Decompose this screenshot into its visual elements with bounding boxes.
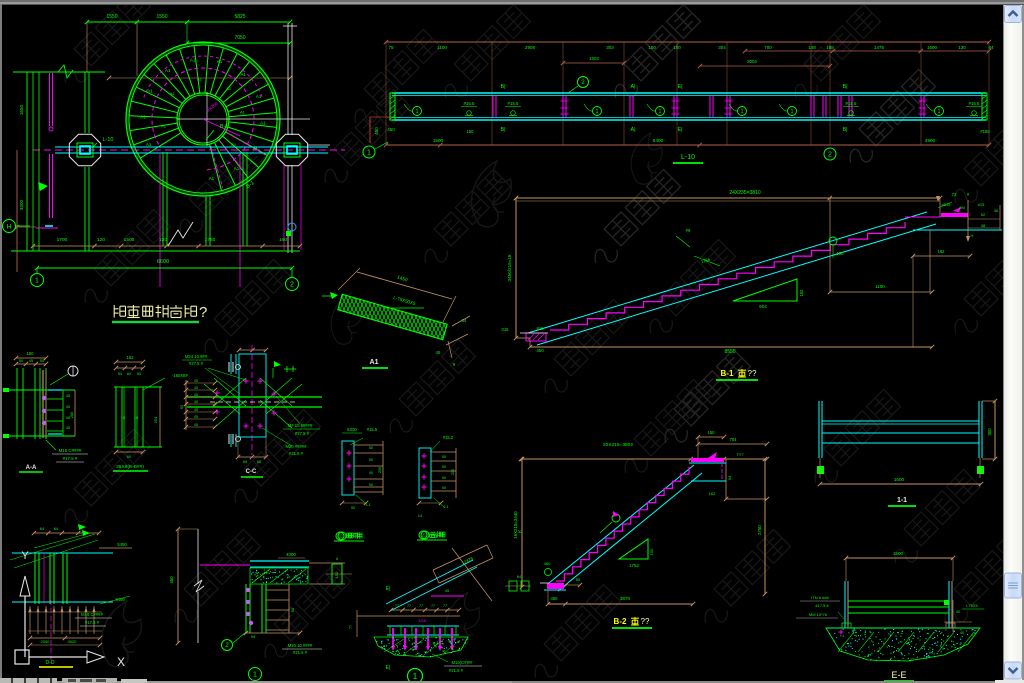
svg-text:1550: 1550 — [156, 14, 167, 20]
svg-text:1700: 1700 — [57, 237, 68, 243]
svg-text:2750: 2750 — [757, 525, 762, 535]
svg-text:A|: A| — [630, 127, 635, 133]
svg-text:250: 250 — [70, 412, 74, 418]
svg-text:162: 162 — [709, 491, 716, 496]
svg-text:45: 45 — [194, 379, 198, 383]
svg-text:1500: 1500 — [124, 237, 135, 243]
svg-text:65: 65 — [243, 460, 247, 464]
svg-text:1600: 1600 — [894, 477, 905, 482]
svg-text:L75X5: L75X5 — [966, 603, 978, 608]
svg-text:A-A: A-A — [26, 465, 37, 471]
svg-text:45: 45 — [436, 350, 441, 355]
svg-text:50: 50 — [40, 359, 44, 363]
svg-text:3300: 3300 — [19, 199, 24, 210]
svg-text:E|: E| — [386, 586, 391, 592]
svg-text:900: 900 — [987, 428, 992, 436]
svg-text:450: 450 — [551, 596, 559, 601]
svg-text:M20 #####: M20 ##### — [286, 444, 308, 449]
svg-text:15: 15 — [134, 416, 138, 420]
svg-text:450: 450 — [387, 127, 395, 132]
svg-text:??: ?? — [748, 369, 757, 378]
svg-text:304: 304 — [718, 45, 726, 50]
svg-text:#15: #15 — [537, 326, 545, 331]
svg-text:2: 2 — [828, 152, 832, 159]
svg-text:150: 150 — [334, 571, 339, 578]
svg-text:45: 45 — [194, 408, 198, 412]
svg-text:A1: A1 — [370, 359, 379, 366]
svg-text:6600: 6600 — [157, 259, 169, 265]
svg-text:50: 50 — [369, 446, 373, 450]
svg-text:150: 150 — [467, 129, 475, 134]
svg-text:Y: Y — [21, 550, 29, 562]
svg-text:150: 150 — [649, 548, 654, 555]
svg-text:55: 55 — [576, 577, 581, 582]
svg-text:16X215=3440: 16X215=3440 — [513, 511, 518, 539]
svg-text:77: 77 — [395, 604, 399, 608]
svg-text:77: 77 — [349, 625, 353, 629]
svg-text:1500: 1500 — [893, 551, 904, 556]
svg-text:E-E: E-E — [891, 670, 906, 680]
svg-text:#21.5 #: #21.5 # — [449, 668, 464, 673]
svg-text:A1: A1 — [240, 72, 246, 77]
svg-text:150: 150 — [799, 289, 804, 297]
svg-text:52: 52 — [981, 212, 986, 217]
svg-text:120: 120 — [159, 237, 167, 243]
svg-text:700: 700 — [764, 45, 772, 50]
svg-text:450: 450 — [169, 576, 174, 584]
svg-text:#21.5 #: #21.5 # — [289, 451, 304, 456]
svg-text:92: 92 — [179, 404, 184, 409]
svg-text:3450/215=16: 3450/215=16 — [507, 254, 512, 281]
svg-text:#17.5 #: #17.5 # — [85, 620, 100, 625]
svg-text:A|: A| — [630, 84, 635, 90]
svg-text:A1: A1 — [217, 59, 223, 64]
svg-text:#27.5 #: #27.5 # — [189, 361, 204, 366]
svg-text:E|: E| — [677, 84, 682, 90]
svg-text:5825: 5825 — [234, 14, 245, 20]
svg-text:460: 460 — [544, 561, 551, 566]
svg-text:A1: A1 — [209, 176, 215, 181]
svg-text:A1: A1 — [256, 94, 262, 99]
svg-text:3020: 3020 — [68, 639, 78, 644]
svg-text:#15.5: #15.5 — [367, 427, 378, 432]
svg-text:1780: 1780 — [205, 237, 216, 243]
svg-text:64: 64 — [462, 318, 467, 323]
svg-text:1-1: 1-1 — [897, 497, 907, 504]
svg-text:MM 10*7#: MM 10*7# — [809, 612, 828, 617]
svg-text:4900: 4900 — [925, 138, 936, 144]
svg-text:A1: A1 — [231, 142, 237, 147]
svg-text:C-C: C-C — [246, 469, 257, 475]
svg-text:1650: 1650 — [19, 104, 24, 115]
svg-text:50: 50 — [118, 372, 122, 376]
svg-text:108: 108 — [826, 45, 834, 50]
svg-text:150: 150 — [837, 251, 845, 256]
svg-text:#9: #9 — [686, 228, 691, 233]
svg-text:1: 1 — [596, 109, 599, 115]
svg-text:A1: A1 — [197, 77, 203, 82]
svg-text:38: 38 — [981, 223, 986, 228]
svg-text:#27.5 #: #27.5 # — [295, 431, 310, 436]
svg-text:1-1: 1-1 — [443, 505, 449, 509]
svg-text:L-10: L-10 — [681, 154, 695, 161]
svg-text:60: 60 — [127, 372, 131, 376]
svg-text:50: 50 — [442, 455, 446, 459]
svg-text:7050: 7050 — [234, 35, 245, 41]
svg-text:H: H — [7, 224, 12, 231]
svg-text:77: 77 — [443, 604, 447, 608]
svg-text:B|: B| — [842, 84, 847, 90]
svg-text:4000: 4000 — [286, 552, 296, 557]
svg-text:6400: 6400 — [653, 138, 664, 144]
svg-text:ITN 6.###: ITN 6.### — [811, 595, 829, 600]
svg-text:50: 50 — [19, 359, 23, 363]
svg-text:60: 60 — [127, 455, 131, 459]
svg-text:148: 148 — [808, 45, 816, 50]
svg-text:50: 50 — [369, 471, 373, 475]
svg-text:#15.5: #15.5 — [464, 101, 476, 106]
svg-text:E|: E| — [677, 127, 682, 133]
svg-text:64: 64 — [54, 526, 59, 531]
svg-text:50: 50 — [442, 476, 446, 480]
svg-text:45: 45 — [194, 393, 198, 397]
svg-text:E|: E| — [386, 665, 391, 671]
svg-text:45: 45 — [194, 400, 198, 404]
svg-text:1500: 1500 — [433, 138, 444, 143]
svg-text:1100: 1100 — [437, 45, 447, 50]
svg-text:#21.5 #: #21.5 # — [293, 650, 308, 655]
svg-text:3#: 3# — [994, 208, 999, 213]
svg-text:A1: A1 — [190, 57, 196, 62]
svg-text:D-D: D-D — [46, 660, 55, 666]
svg-text:45: 45 — [66, 394, 70, 398]
svg-text:50: 50 — [137, 372, 141, 376]
svg-text:65: 65 — [257, 460, 261, 464]
svg-text:50: 50 — [442, 465, 446, 469]
svg-text:162: 162 — [938, 249, 946, 254]
svg-text:#185: #185 — [980, 129, 990, 134]
svg-text:A1: A1 — [147, 88, 153, 93]
svg-text:35X8(B-B##): 35X8(B-B##) — [116, 464, 144, 470]
svg-text:50: 50 — [351, 506, 355, 510]
svg-text:1752: 1752 — [629, 563, 639, 568]
svg-text:40: 40 — [960, 631, 964, 635]
svg-text:75: 75 — [388, 45, 394, 50]
svg-text:250: 250 — [378, 467, 382, 473]
svg-text:1503: 1503 — [589, 56, 599, 61]
svg-text:45: 45 — [66, 426, 70, 430]
svg-text:A1: A1 — [240, 110, 246, 115]
svg-text:#15.5: #15.5 — [846, 101, 858, 106]
svg-text:X: X — [117, 655, 125, 669]
svg-text:#M: #M — [959, 205, 965, 210]
svg-text:A1: A1 — [170, 91, 176, 96]
svg-text:B|: B| — [842, 127, 847, 133]
svg-text:200: 200 — [451, 469, 455, 475]
svg-text:1150: 1150 — [875, 284, 885, 289]
svg-text:5X50: 5X50 — [347, 427, 357, 432]
svg-text:77: 77 — [431, 604, 435, 608]
svg-text:1600: 1600 — [927, 45, 938, 50]
svg-text:73: 73 — [952, 192, 957, 197]
svg-text:150: 150 — [708, 430, 716, 435]
svg-text:1: 1 — [413, 672, 418, 681]
svg-text:254: 254 — [153, 416, 158, 423]
svg-text:14: 14 — [418, 513, 423, 518]
svg-text:A1: A1 — [140, 114, 146, 119]
svg-text:64: 64 — [517, 575, 521, 579]
svg-text:32: 32 — [518, 529, 523, 534]
svg-text:40: 40 — [956, 610, 960, 614]
svg-text:?: ? — [199, 304, 207, 321]
svg-text:50: 50 — [442, 486, 446, 490]
svg-text:#15: #15 — [978, 202, 985, 207]
svg-text:M# 10.9####: M# 10.9#### — [288, 423, 313, 428]
svg-text:M16 C####: M16 C#### — [59, 448, 82, 453]
svg-text:A1: A1 — [260, 121, 266, 126]
svg-text:50: 50 — [369, 483, 373, 487]
svg-text:B-1: B-1 — [220, 124, 229, 130]
svg-text:45: 45 — [66, 405, 70, 409]
svg-text:TY7: TY7 — [736, 452, 744, 457]
svg-text:45: 45 — [445, 589, 449, 593]
svg-text:64: 64 — [40, 526, 45, 531]
svg-text:A1: A1 — [165, 68, 171, 73]
svg-text:1/25: 1/25 — [418, 618, 427, 623]
svg-text:1550: 1550 — [106, 14, 117, 20]
svg-text:77: 77 — [407, 604, 411, 608]
svg-text:1: 1 — [791, 109, 794, 115]
svg-text:A1: A1 — [226, 86, 232, 91]
svg-text:150: 150 — [648, 45, 656, 50]
svg-text:1: 1 — [416, 109, 419, 115]
svg-text:150: 150 — [27, 351, 35, 356]
svg-text:130: 130 — [958, 45, 966, 50]
svg-text:50: 50 — [290, 607, 295, 612]
svg-text:#15.5: #15.5 — [969, 101, 981, 106]
svg-text:A1: A1 — [234, 166, 240, 171]
svg-text:1: 1 — [367, 150, 371, 157]
svg-text:160: 160 — [279, 237, 287, 243]
svg-text:100: 100 — [673, 45, 681, 50]
svg-text:904: 904 — [759, 304, 767, 309]
svg-text:M20 10.####: M20 10.#### — [288, 643, 313, 648]
svg-text:1: 1 — [35, 278, 39, 285]
svg-text:#17.5 #: #17.5 # — [63, 456, 78, 461]
svg-text:B-1: B-1 — [721, 369, 734, 378]
svg-text:B|: B| — [500, 84, 505, 90]
svg-text:450: 450 — [374, 127, 379, 135]
svg-text:120: 120 — [97, 237, 105, 243]
svg-text:#15.2: #15.2 — [443, 435, 454, 440]
svg-text:??: ?? — [641, 617, 650, 626]
svg-text:45: 45 — [194, 415, 198, 419]
svg-text:M24 10.9##: M24 10.9## — [185, 354, 208, 359]
svg-text:24X235=3810: 24X235=3810 — [729, 190, 761, 196]
svg-text:1475: 1475 — [874, 45, 885, 50]
svg-text:1: 1 — [741, 109, 744, 115]
svg-text:45: 45 — [194, 423, 198, 427]
svg-text:2004: 2004 — [747, 59, 757, 64]
svg-text:1: 1 — [253, 672, 257, 679]
svg-text:A1: A1 — [146, 142, 152, 147]
svg-text:50: 50 — [369, 458, 373, 462]
svg-text:704: 704 — [730, 437, 738, 442]
svg-text:303: 303 — [606, 45, 614, 50]
svg-text:M16(C#)##: M16(C#)## — [452, 660, 474, 665]
svg-text:#17.5 #: #17.5 # — [815, 603, 829, 608]
svg-text:015: 015 — [502, 327, 510, 332]
svg-text:2000: 2000 — [41, 639, 51, 644]
svg-text:1-1: 1-1 — [365, 503, 371, 507]
svg-text:1: 1 — [938, 109, 941, 115]
svg-text:2: 2 — [290, 282, 294, 289]
svg-text:94: 94 — [727, 475, 732, 480]
svg-text:45: 45 — [29, 359, 33, 363]
svg-text:94: 94 — [251, 634, 256, 639]
svg-text:1: 1 — [659, 109, 662, 115]
svg-text:-160X8#: -160X8# — [172, 373, 189, 378]
svg-text:M16 C####: M16 C#### — [81, 612, 103, 617]
svg-text:77: 77 — [419, 604, 423, 608]
svg-text:B-2: B-2 — [614, 617, 627, 626]
svg-text:162: 162 — [127, 355, 135, 360]
svg-text:15: 15 — [121, 416, 125, 420]
svg-text:H: H — [971, 233, 974, 238]
svg-text:3870: 3870 — [620, 596, 631, 601]
svg-text:2908: 2908 — [525, 45, 536, 50]
svg-text:3450: 3450 — [117, 542, 127, 547]
svg-text:20X215=3802: 20X215=3802 — [603, 442, 633, 448]
svg-text:L-10: L-10 — [102, 137, 113, 143]
svg-text:#15.5: #15.5 — [508, 101, 520, 106]
svg-text:450: 450 — [536, 348, 544, 353]
svg-text:45: 45 — [194, 386, 198, 390]
svg-text:8550: 8550 — [724, 349, 735, 355]
svg-text:A1: A1 — [161, 123, 167, 128]
svg-text:B|: B| — [500, 127, 505, 133]
